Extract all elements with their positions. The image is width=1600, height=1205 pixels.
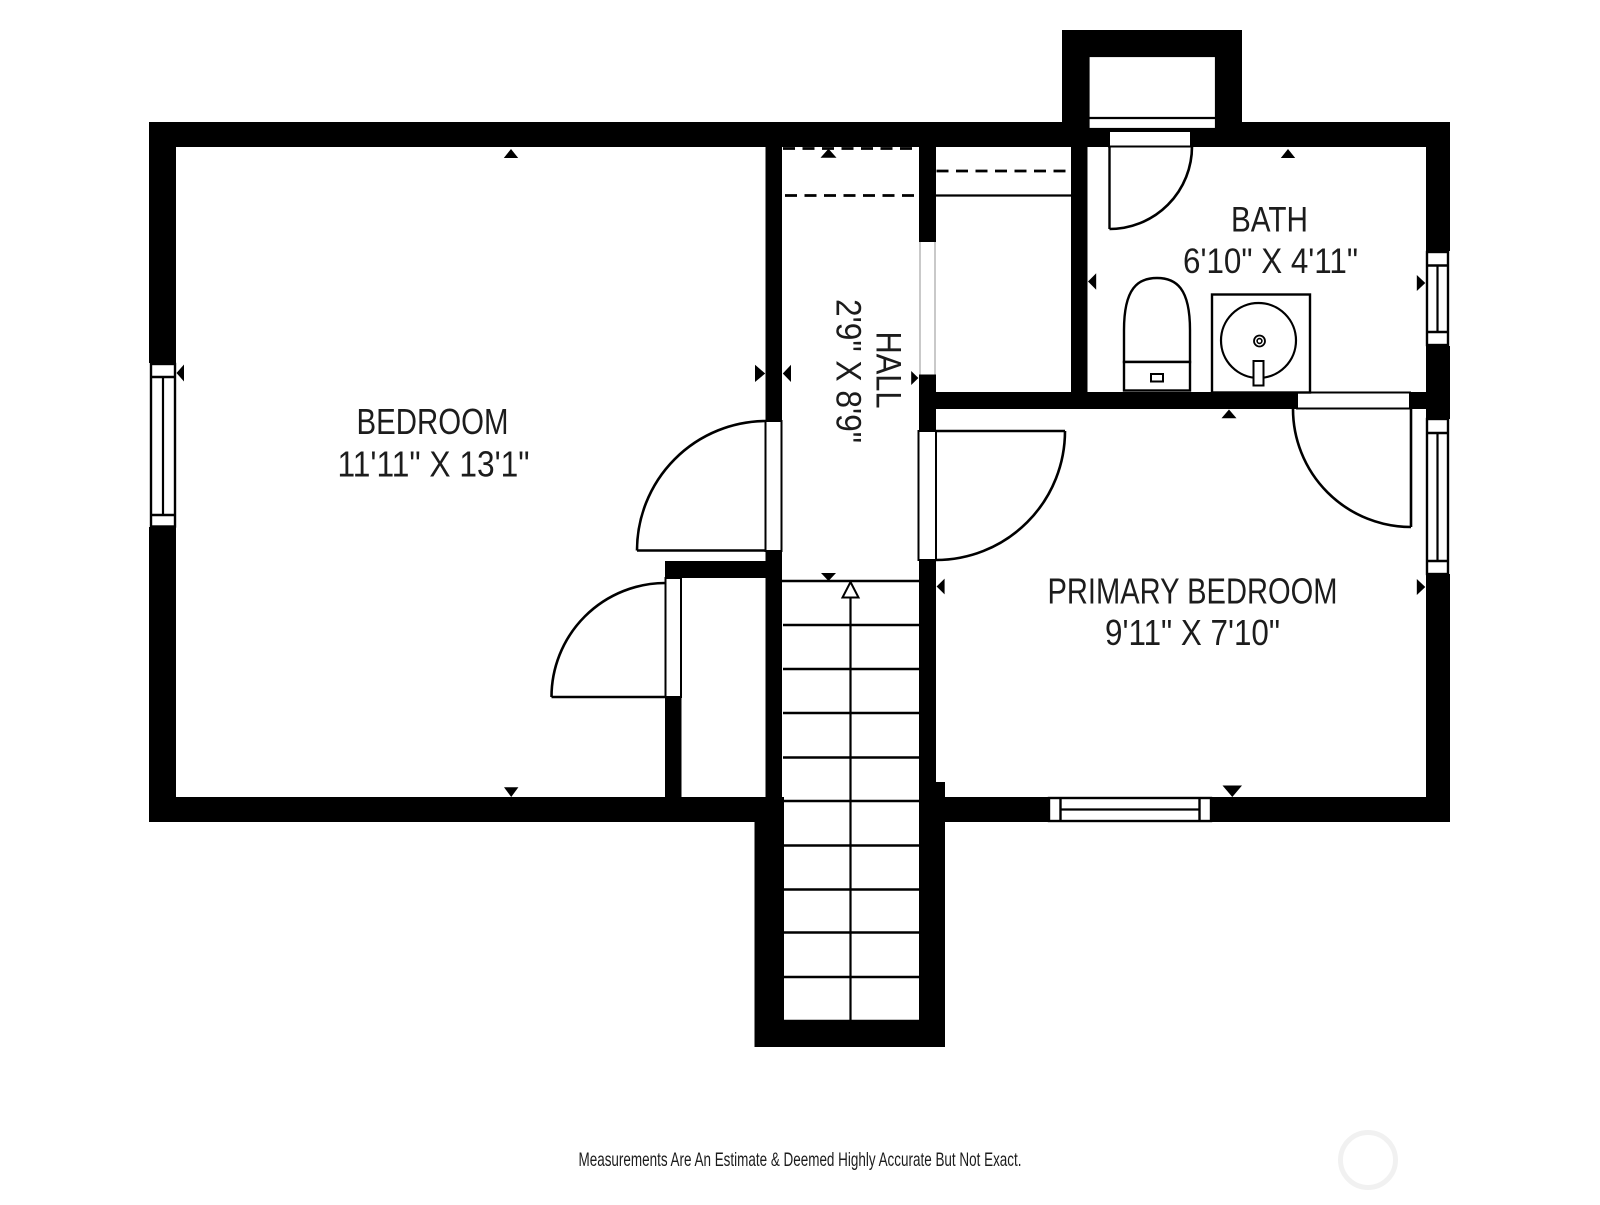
svg-text:PRIMARY BEDROOM: PRIMARY BEDROOM (1048, 571, 1338, 612)
svg-text:9'11" X 7'10": 9'11" X 7'10" (1105, 612, 1280, 653)
svg-text:Measurements Are An Estimate &: Measurements Are An Estimate & Deemed Hi… (579, 1149, 1022, 1171)
svg-text:6'10" X 4'11": 6'10" X 4'11" (1183, 242, 1358, 281)
svg-text:HALL: HALL (869, 332, 908, 409)
svg-text:11'11" X 13'1": 11'11" X 13'1" (338, 444, 530, 485)
svg-text:BEDROOM: BEDROOM (357, 401, 509, 442)
svg-text:BATH: BATH (1231, 201, 1308, 240)
svg-text:2'9" X 8'9": 2'9" X 8'9" (829, 299, 868, 443)
